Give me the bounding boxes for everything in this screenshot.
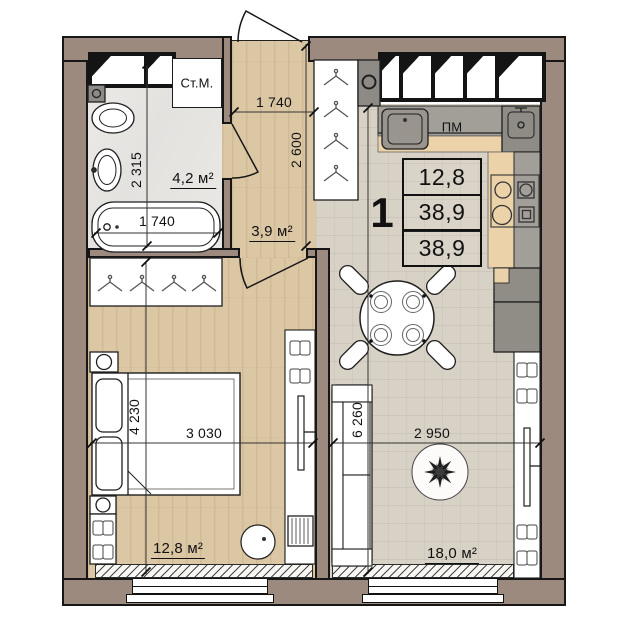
living-console <box>514 352 540 578</box>
dim-living-depth: 6 260 <box>350 402 364 438</box>
dim-bedroom-depth: 4 230 <box>127 399 141 435</box>
dining-set <box>336 262 458 372</box>
bedroom-door-arc <box>240 258 308 288</box>
water-heater-icon <box>358 60 380 106</box>
dining-chair <box>336 337 371 372</box>
kitchen-counter-right <box>488 152 540 268</box>
nightstand-lamp <box>90 496 116 514</box>
entry-door-arc <box>238 11 302 42</box>
info-table-cells: 12,8 38,9 38,9 <box>402 158 482 267</box>
fridge-cabinets <box>494 268 540 352</box>
plan-symbols <box>0 0 632 632</box>
dining-chair <box>336 262 371 297</box>
area-label-hallway: 3,9 м² <box>249 224 295 242</box>
pouf <box>241 525 275 559</box>
dining-chair <box>423 262 458 297</box>
pillow <box>96 379 122 432</box>
bathroom-door-arc <box>232 124 258 178</box>
area-label-bathroom: 4,2 м² <box>170 171 216 189</box>
dishwasher-label: ПМ <box>442 121 463 134</box>
radiator-icon <box>288 516 313 546</box>
books-icon <box>517 525 537 539</box>
bedroom-console <box>285 330 315 564</box>
sofa-armrest <box>332 385 372 402</box>
books-icon <box>290 341 310 355</box>
books-icon <box>517 363 537 377</box>
rooms-count: 1 <box>362 192 402 234</box>
dim-living-width: 2 950 <box>414 426 450 440</box>
books-icon <box>93 545 113 559</box>
second-sink-icon <box>502 106 540 152</box>
total-area-cell: 38,9 <box>402 229 482 267</box>
washing-machine-label: Ст.М. <box>181 77 214 90</box>
area-label-living: 18,0 м² <box>425 546 479 564</box>
dim-bathtub-length: 1 740 <box>139 214 175 228</box>
dining-table <box>360 281 434 355</box>
kitchen-sink-icon <box>382 109 428 149</box>
books-icon <box>517 551 537 565</box>
sofa-back <box>332 402 343 549</box>
rug <box>412 444 468 500</box>
bedside-shelf <box>90 514 116 564</box>
area-label-bedroom: 12,8 м² <box>151 541 205 559</box>
sofa-cushion <box>343 475 370 549</box>
dim-bedroom-width: 3 030 <box>186 426 222 440</box>
books-icon <box>517 389 537 403</box>
pillow <box>96 437 122 490</box>
books-icon <box>290 369 310 383</box>
books-icon <box>93 521 113 535</box>
dim-hallway-width: 1 740 <box>256 95 292 109</box>
hall-wardrobe <box>314 60 358 200</box>
dining-chair <box>423 337 458 372</box>
toilet-icon <box>88 85 134 133</box>
sofa-armrest <box>332 549 372 566</box>
bathroom-sink-icon <box>92 149 121 191</box>
nightstand-lamp <box>90 352 118 372</box>
floor-plan: Ст.М. ПМ 2 315 1 740 1 740 2 600 4 230 3… <box>0 0 632 632</box>
area-mid-cell: 38,9 <box>402 194 482 232</box>
info-table: 1 12,8 38,9 38,9 <box>362 158 482 267</box>
bedroom-wardrobe <box>90 258 222 306</box>
dim-hallway-depth: 2 600 <box>289 132 303 168</box>
dim-bathroom-depth: 2 315 <box>129 152 143 188</box>
living-area-cell: 12,8 <box>402 158 482 196</box>
